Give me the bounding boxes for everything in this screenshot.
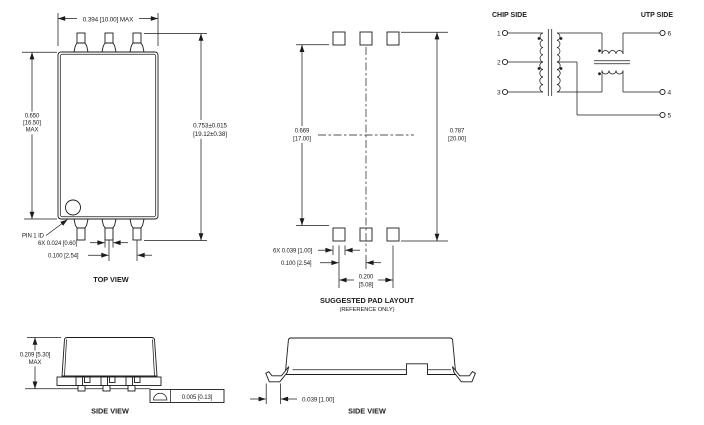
- pad-layout-drawing: 0.669 [17.00] 0.787 [20.00] 6X 0.039 [1.…: [273, 32, 466, 313]
- side-a-body: [62, 338, 157, 377]
- outer-extension-lines: [401, 32, 448, 241]
- dim-pad-pitch: 0.100 [2.54]: [281, 261, 312, 267]
- side-view-b-drawing: 0.039 [1.00] SIDE VIEW: [250, 338, 475, 416]
- pin1-id-label: PIN 1 ID: [22, 234, 45, 240]
- flatness-control-frame: 0.005 [0.13]: [150, 390, 224, 403]
- choke-top-winding: [602, 51, 623, 55]
- dim-lead-span-mm: [19.12±0.38]: [193, 131, 227, 138]
- drawing-canvas: 0.394 [10.00] MAX 0.753±0.015 [19.1: [0, 0, 704, 425]
- pin-5-number: 5: [668, 112, 672, 119]
- bottom-rail-wires: [557, 71, 660, 93]
- height-extension-lines: [22, 52, 57, 219]
- pin-3-number: 3: [497, 89, 501, 96]
- schematic-drawing: CHIP SIDE UTP SIDE 1 2 3 6 4 5: [492, 12, 673, 119]
- top-rail-wires: [557, 33, 660, 54]
- pin-6-number: 6: [668, 30, 672, 37]
- dim-pad-span-mm: [5.08]: [359, 283, 374, 289]
- transformer-core: [548, 29, 551, 96]
- utp-side-label: UTP SIDE: [641, 12, 673, 19]
- dim-side-height: 0.209 [5.30]: [20, 353, 51, 359]
- pad-layout-subtitle: (REFERENCE ONLY): [340, 307, 395, 313]
- dim-lead-width: 6X 0.024 [0.60]: [38, 241, 78, 247]
- dim-body-height-max: MAX: [26, 128, 39, 134]
- top-view-drawing: 0.394 [10.00] MAX 0.753±0.015 [19.1: [18, 13, 243, 284]
- dim-package-width: 0.394 [10.00] MAX: [83, 16, 134, 23]
- pin-1-number: 1: [497, 30, 501, 37]
- chip-side-label: CHIP SIDE: [492, 12, 527, 19]
- choke-bottom-winding: [602, 71, 623, 75]
- lead-length-extension-lines: [266, 384, 280, 405]
- pin-6-terminal: [660, 30, 665, 35]
- choke-core: [594, 61, 630, 64]
- polarity-dots: [538, 37, 601, 75]
- dim-lead-pitch: 0.100 [2.54]: [48, 254, 79, 260]
- pin-5-terminal: [660, 112, 665, 117]
- dim-side-height-max: MAX: [29, 360, 42, 366]
- side-b-right-lead: [452, 367, 475, 382]
- dim-lead-span-in: 0.753±0.015: [193, 123, 227, 130]
- pin-1-terminal: [502, 30, 507, 35]
- top-leads: [74, 33, 144, 52]
- pin-2-number: 2: [497, 59, 501, 66]
- dim-pad-outer-mm: [20.00]: [448, 137, 466, 143]
- dim-pad-span-in: 0.200: [359, 275, 374, 281]
- pin-2-terminal: [502, 59, 507, 64]
- dim-body-height-in: 0.650: [25, 114, 40, 120]
- side-view-a-drawing: 0.209 [5.30] MAX 0.005 [0.13] SIDE VIEW: [19, 338, 224, 416]
- transformer-primary-winding: [540, 33, 543, 92]
- dim-pad-inner-mm: [17.00]: [293, 137, 311, 143]
- mechanical-drawing-page: 0.394 [10.00] MAX 0.753±0.015 [19.1: [0, 0, 704, 425]
- side-b-body: [285, 338, 456, 375]
- side-view-a-title: SIDE VIEW: [91, 407, 129, 416]
- primary-wires: [508, 33, 543, 92]
- pin-3-terminal: [502, 89, 507, 94]
- dim-pad-width: 6X 0.039 [1.00]: [273, 249, 313, 255]
- center-tap-wire: [557, 62, 660, 115]
- side-a-lead-rail: [57, 377, 161, 386]
- pad-layout-title: SUGGESTED PAD LAYOUT: [320, 296, 415, 305]
- package-body-outline: [58, 52, 158, 219]
- bottom-leads: [74, 219, 144, 240]
- pin1-leader-line: [46, 220, 68, 236]
- pin-4-terminal: [660, 89, 665, 94]
- top-pads: [333, 32, 399, 45]
- dim-lead-length: 0.039 [1.00]: [302, 396, 334, 403]
- dim-pad-inner-in: 0.669: [295, 129, 310, 135]
- pin-4-number: 4: [668, 89, 672, 96]
- top-view-title: TOP VIEW: [93, 275, 129, 284]
- dim-pad-outer-in: 0.787: [450, 129, 465, 135]
- dim-body-height-mm: [16.50]: [23, 121, 41, 127]
- transformer-secondary-winding: [557, 33, 560, 92]
- side-view-b-title: SIDE VIEW: [348, 407, 386, 416]
- flatness-value: 0.005 [0.13]: [182, 395, 213, 401]
